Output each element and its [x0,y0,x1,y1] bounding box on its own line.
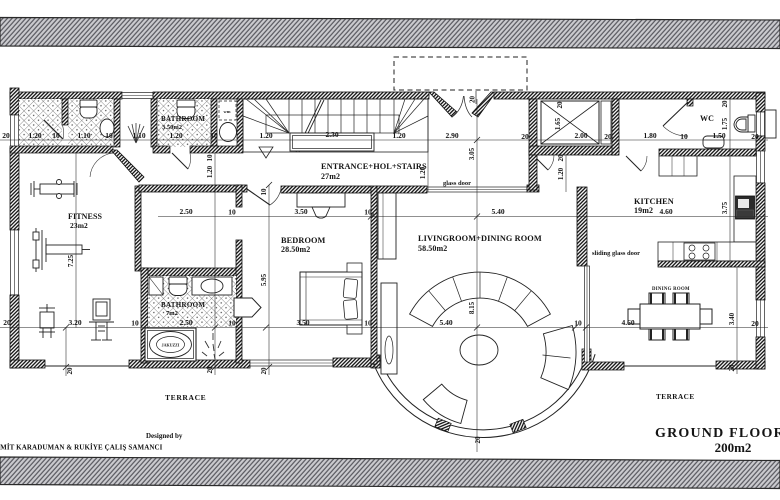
svg-text:TERRACE: TERRACE [165,393,206,402]
svg-text:27m2: 27m2 [321,172,340,181]
svg-text:28.50m2: 28.50m2 [281,245,310,254]
svg-text:10: 10 [680,132,688,141]
svg-text:1.20: 1.20 [259,131,272,140]
svg-text:20: 20 [728,364,736,372]
svg-text:ÜMİT KARADUMAN & RUKİYE ÇALIŞ: ÜMİT KARADUMAN & RUKİYE ÇALIŞ SAMANCI [0,444,163,452]
svg-text:3.40: 3.40 [728,312,736,325]
svg-text:1.50: 1.50 [712,131,725,140]
svg-text:5.95: 5.95 [260,273,268,286]
svg-text:8.15: 8.15 [468,301,476,314]
svg-text:1.20: 1.20 [392,131,405,140]
svg-text:1.20: 1.20 [206,165,214,178]
svg-text:wm: wm [224,109,231,114]
svg-text:10: 10 [364,208,372,217]
svg-text:20: 20 [3,318,11,327]
svg-text:7.25: 7.25 [67,254,75,267]
svg-text:3.75: 3.75 [721,201,729,214]
svg-text:20: 20 [751,132,759,141]
svg-text:2.50: 2.50 [179,318,192,327]
svg-text:200m2: 200m2 [715,440,752,455]
svg-text:3.50: 3.50 [294,207,307,216]
svg-text:1.75: 1.75 [721,117,729,130]
svg-text:3.05: 3.05 [468,147,476,160]
svg-text:10: 10 [228,208,236,217]
svg-text:7m2: 7m2 [166,310,178,317]
svg-text:20: 20 [260,367,268,375]
svg-text:58.50m2: 58.50m2 [418,244,447,253]
svg-text:19m2: 19m2 [634,206,653,215]
svg-text:20: 20 [556,101,564,109]
svg-text:ENTRANCE+HOL+STAIRS: ENTRANCE+HOL+STAIRS [321,162,427,171]
svg-text:BEDROOM: BEDROOM [281,236,326,245]
svg-text:DINING ROOM: DINING ROOM [652,287,690,292]
svg-text:20: 20 [474,436,482,444]
svg-text:3.50: 3.50 [296,318,309,327]
svg-text:10: 10 [105,131,113,140]
svg-text:20: 20 [2,131,10,140]
svg-text:10: 10 [364,319,372,328]
svg-text:20: 20 [557,154,565,162]
svg-text:10: 10 [206,154,214,162]
svg-text:10: 10 [260,188,268,196]
svg-text:1.65: 1.65 [554,117,562,130]
svg-text:3.20: 3.20 [68,318,81,327]
svg-text:BATHROOM: BATHROOM [161,115,205,123]
svg-text:1.10: 1.10 [77,131,90,140]
svg-text:20: 20 [604,132,612,141]
svg-text:10: 10 [574,319,582,328]
svg-text:1.20: 1.20 [169,131,182,140]
svg-text:JAKUZZI: JAKUZZI [162,343,180,348]
svg-text:WC: WC [700,114,714,123]
svg-text:FITNESS: FITNESS [68,212,102,221]
svg-text:2.50: 2.50 [179,207,192,216]
svg-text:Designed by: Designed by [146,432,183,440]
svg-text:20: 20 [469,96,477,104]
svg-text:LIVINGROOM+DINING ROOM: LIVINGROOM+DINING ROOM [418,234,542,243]
svg-text:20: 20 [721,100,729,108]
svg-text:20: 20 [521,132,529,141]
svg-text:10: 10 [131,319,139,328]
svg-text:1.80: 1.80 [643,131,656,140]
svg-text:5.40: 5.40 [439,318,452,327]
svg-text:2.30: 2.30 [325,130,338,139]
svg-text:1.20: 1.20 [28,131,41,140]
svg-text:sliding glass door: sliding glass door [592,250,640,257]
svg-text:10: 10 [228,319,236,328]
svg-text:4.60: 4.60 [621,318,634,327]
svg-text:4.60: 4.60 [659,207,672,216]
svg-text:TERRACE: TERRACE [656,393,695,401]
svg-text:2.00: 2.00 [574,131,587,140]
svg-text:2.90: 2.90 [445,131,458,140]
svg-text:23m2: 23m2 [70,221,88,230]
svg-text:20: 20 [66,367,74,375]
svg-text:10: 10 [210,131,218,140]
svg-text:3.50m2: 3.50m2 [162,124,182,131]
svg-text:glass door: glass door [443,180,471,187]
svg-text:GROUND FLOOR PL: GROUND FLOOR PL [655,426,780,441]
svg-text:1.10: 1.10 [132,131,145,140]
svg-text:KITCHEN: KITCHEN [634,197,674,206]
svg-text:1.20: 1.20 [557,167,565,180]
svg-text:20: 20 [206,366,214,374]
svg-text:10: 10 [52,131,60,140]
svg-text:BATHROOM: BATHROOM [161,301,205,309]
svg-text:5.40: 5.40 [491,207,504,216]
svg-text:20: 20 [751,319,759,328]
